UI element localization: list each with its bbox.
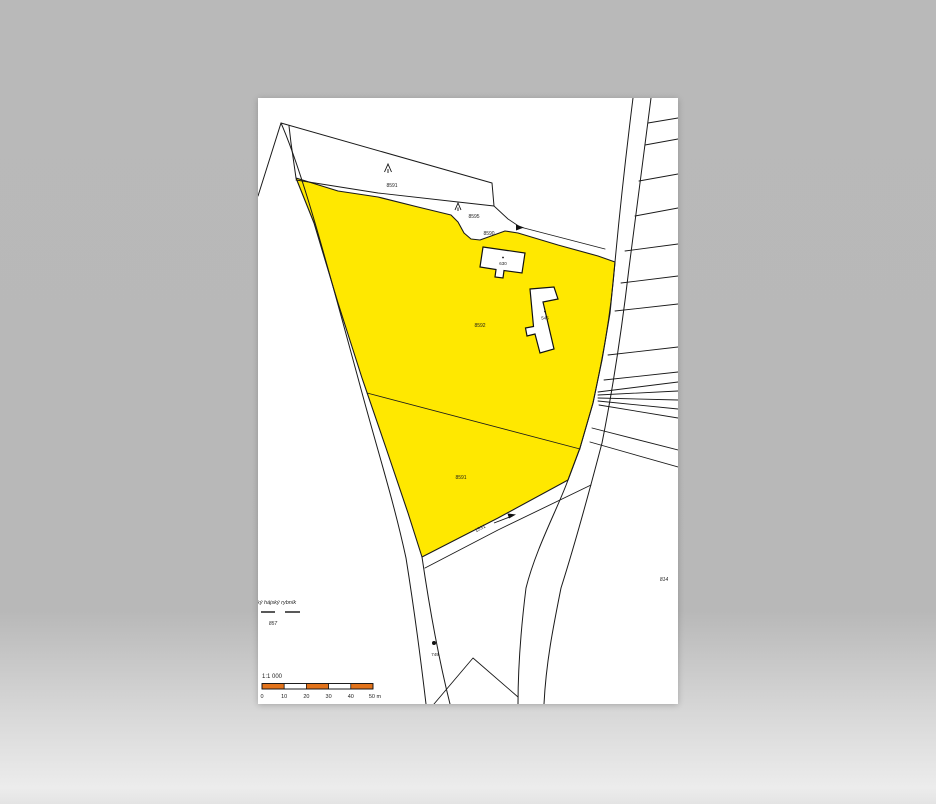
scale-ratio-label: 1:1 000	[262, 674, 283, 680]
point-marker-icon	[432, 641, 436, 645]
parcel-label-east: 814	[660, 577, 669, 583]
pond-name-label: ký hájský rybník	[258, 600, 296, 606]
parcel-label-strip: 8591	[386, 183, 397, 189]
highlighted-parcel	[296, 178, 615, 557]
viewer-background: 8591 8595 8590 8592 8591 1531 857 749 81…	[0, 0, 936, 804]
scalebar-tick: 50 m	[369, 694, 382, 700]
parcel-label-lower: 8591	[455, 475, 466, 481]
scalebar-segments	[262, 684, 373, 690]
scalebar-segment	[329, 684, 351, 690]
building-number-small: 630	[499, 261, 507, 266]
scalebar-tick: 20	[303, 694, 309, 700]
scalebar-tick: 0	[260, 694, 263, 700]
parcel-label-wedge-lower: 8590	[483, 231, 494, 237]
tree-icon	[455, 203, 461, 211]
scalebar-tick: 30	[326, 694, 332, 700]
cadastral-map: 8591 8595 8590 8592 8591 1531 857 749 81…	[258, 98, 678, 704]
scalebar-tick: 40	[348, 694, 354, 700]
scalebar-segment	[306, 684, 328, 690]
scalebar-segment	[262, 684, 284, 690]
building-point-icon	[502, 257, 504, 259]
building-point-icon	[544, 311, 546, 313]
northwest-boundary-line	[258, 123, 281, 196]
south-parcel-boundary	[434, 658, 518, 704]
building-number-long: 545	[541, 316, 549, 321]
parcel-label-pond: 857	[269, 621, 278, 627]
parcel-label-main: 8592	[474, 323, 485, 329]
map-sheet: 8591 8595 8590 8592 8591 1531 857 749 81…	[258, 98, 678, 704]
tree-icon	[385, 164, 392, 173]
parcel-label-wedge-upper: 8595	[468, 214, 479, 220]
scalebar-segment	[351, 684, 373, 690]
scalebar-ticks: 0 10 20 30 40 50 m	[260, 694, 381, 700]
boundary-point-marker-icon	[516, 225, 524, 231]
scalebar-tick: 10	[281, 694, 287, 700]
parcel-label-road-marker: 749	[431, 652, 439, 657]
scalebar-segment	[284, 684, 306, 690]
